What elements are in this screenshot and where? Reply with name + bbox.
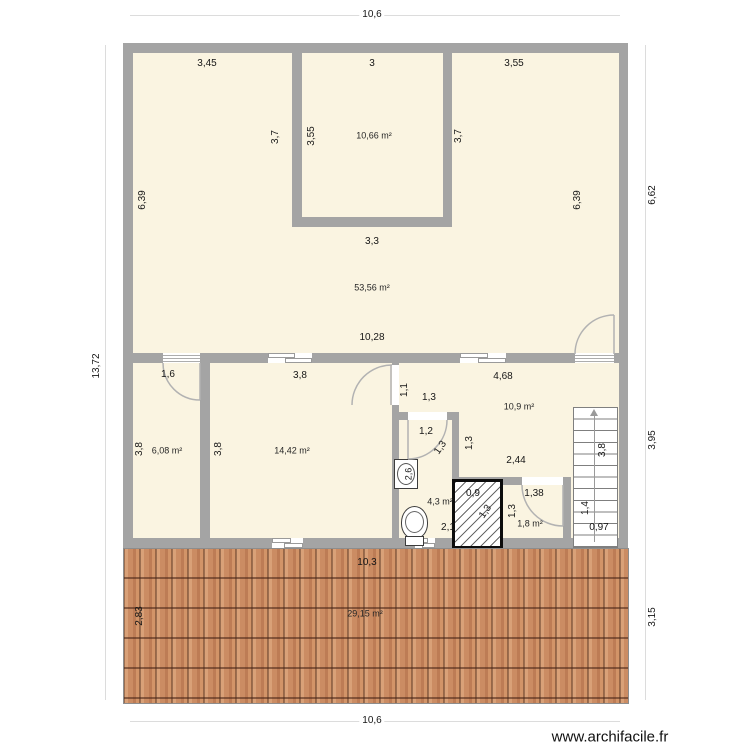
- wall-outer-left[interactable]: [123, 43, 133, 548]
- window-mid-right[interactable]: [460, 353, 506, 363]
- dim-wc-door: 1,38: [524, 489, 543, 499]
- dim-room3-inner-width: 2,44: [506, 456, 525, 466]
- dim-below-innerroom: 3,3: [365, 237, 379, 247]
- area-wc: 1,8 m²: [517, 520, 543, 529]
- area-room1: 6,08 m²: [152, 447, 183, 456]
- door-bath-opening[interactable]: [408, 412, 447, 420]
- dim-seg-left: 3,45: [197, 59, 216, 69]
- building-interior: [123, 43, 628, 548]
- wall-outer-right[interactable]: [619, 43, 628, 548]
- window-bottom-room2[interactable]: [272, 538, 303, 548]
- door-room2-opening[interactable]: [392, 365, 399, 405]
- area-roof: 29,15 m²: [347, 610, 383, 619]
- wall-wc-right[interactable]: [563, 485, 571, 538]
- dim-top-width: 10,6: [359, 10, 384, 20]
- dim-left-height: 13,72: [92, 350, 102, 381]
- dim-room3-inner-height: 1,3: [465, 436, 475, 450]
- wall-innerroom-right[interactable]: [443, 53, 452, 227]
- dim-right-lower: 3,15: [648, 604, 658, 629]
- area-room3: 10,9 m²: [504, 403, 535, 412]
- dim-room3-width: 4,68: [493, 372, 512, 382]
- floor-plan-canvas[interactable]: 10,6 10,6 13,72 6,62 3,95 3,15 3,45 3 3,…: [0, 0, 750, 750]
- area-innerroom: 10,66 m²: [356, 132, 392, 141]
- stair-direction-arrow-icon: [590, 409, 598, 416]
- dim-upper-right-height: 6,39: [573, 190, 583, 209]
- dim-wc-height: 1,3: [508, 504, 518, 518]
- dim-living-width: 10,28: [359, 333, 384, 343]
- dim-innerroom-height: 3,55: [307, 126, 317, 145]
- dim-line-left: [105, 45, 106, 700]
- dim-room2-width: 3,8: [293, 371, 307, 381]
- dim-room1-height: 3,8: [135, 442, 145, 456]
- dim-shower-width: 0,9: [466, 489, 480, 499]
- area-room2: 14,42 m²: [274, 447, 310, 456]
- dim-room3-step-height: 1,1: [400, 383, 410, 397]
- dim-bath-door: 1,2: [419, 427, 433, 437]
- dim-roof-width: 10,3: [357, 558, 376, 568]
- dim-bottom-width: 10,6: [359, 716, 384, 726]
- dim-bath-sink-side: 2,6: [405, 468, 414, 481]
- door-room1-threshold[interactable]: [163, 353, 200, 363]
- wall-innerroom-bottom[interactable]: [292, 217, 452, 227]
- dim-stairs-run: 1,4: [581, 501, 591, 515]
- wall-bath-right[interactable]: [452, 420, 459, 477]
- area-living: 53,56 m²: [354, 284, 390, 293]
- wall-innerroom-left[interactable]: [292, 53, 302, 227]
- dim-innerroom-wall-right: 3,7: [454, 129, 464, 143]
- dim-bath-width: 2,1: [441, 523, 455, 533]
- dim-right-upper: 6,62: [648, 182, 658, 207]
- dim-line-right: [645, 45, 646, 700]
- dim-seg-center: 3: [369, 59, 375, 69]
- wall-middle[interactable]: [133, 353, 619, 363]
- roof-tiles[interactable]: [123, 548, 629, 704]
- window-mid-left[interactable]: [268, 353, 312, 363]
- dim-innerroom-wall-left: 3,7: [271, 130, 281, 144]
- dim-stairs-width: 0,97: [589, 523, 608, 533]
- watermark: www.archifacile.fr: [552, 729, 669, 746]
- door-wc-opening[interactable]: [522, 477, 563, 485]
- dim-stairs-height: 3,8: [598, 443, 608, 457]
- dim-upper-left-height: 6,39: [138, 190, 148, 209]
- dim-roof-height: 2,83: [135, 606, 145, 625]
- dim-room3-step-width: 1,3: [422, 393, 436, 403]
- dim-seg-right: 3,55: [504, 59, 523, 69]
- area-bathroom: 4,3 m²: [427, 498, 453, 507]
- wall-outer-bottom[interactable]: [123, 538, 628, 548]
- wall-room1-room2[interactable]: [200, 363, 210, 538]
- dim-room1-door: 1,6: [161, 370, 175, 380]
- toilet-tank-icon[interactable]: [405, 536, 424, 546]
- toilet-icon[interactable]: [401, 506, 428, 539]
- dim-room2-height: 3,8: [214, 442, 224, 456]
- door-living-threshold[interactable]: [575, 353, 614, 363]
- wall-outer-top[interactable]: [123, 43, 628, 53]
- dim-right-middle: 3,95: [648, 427, 658, 452]
